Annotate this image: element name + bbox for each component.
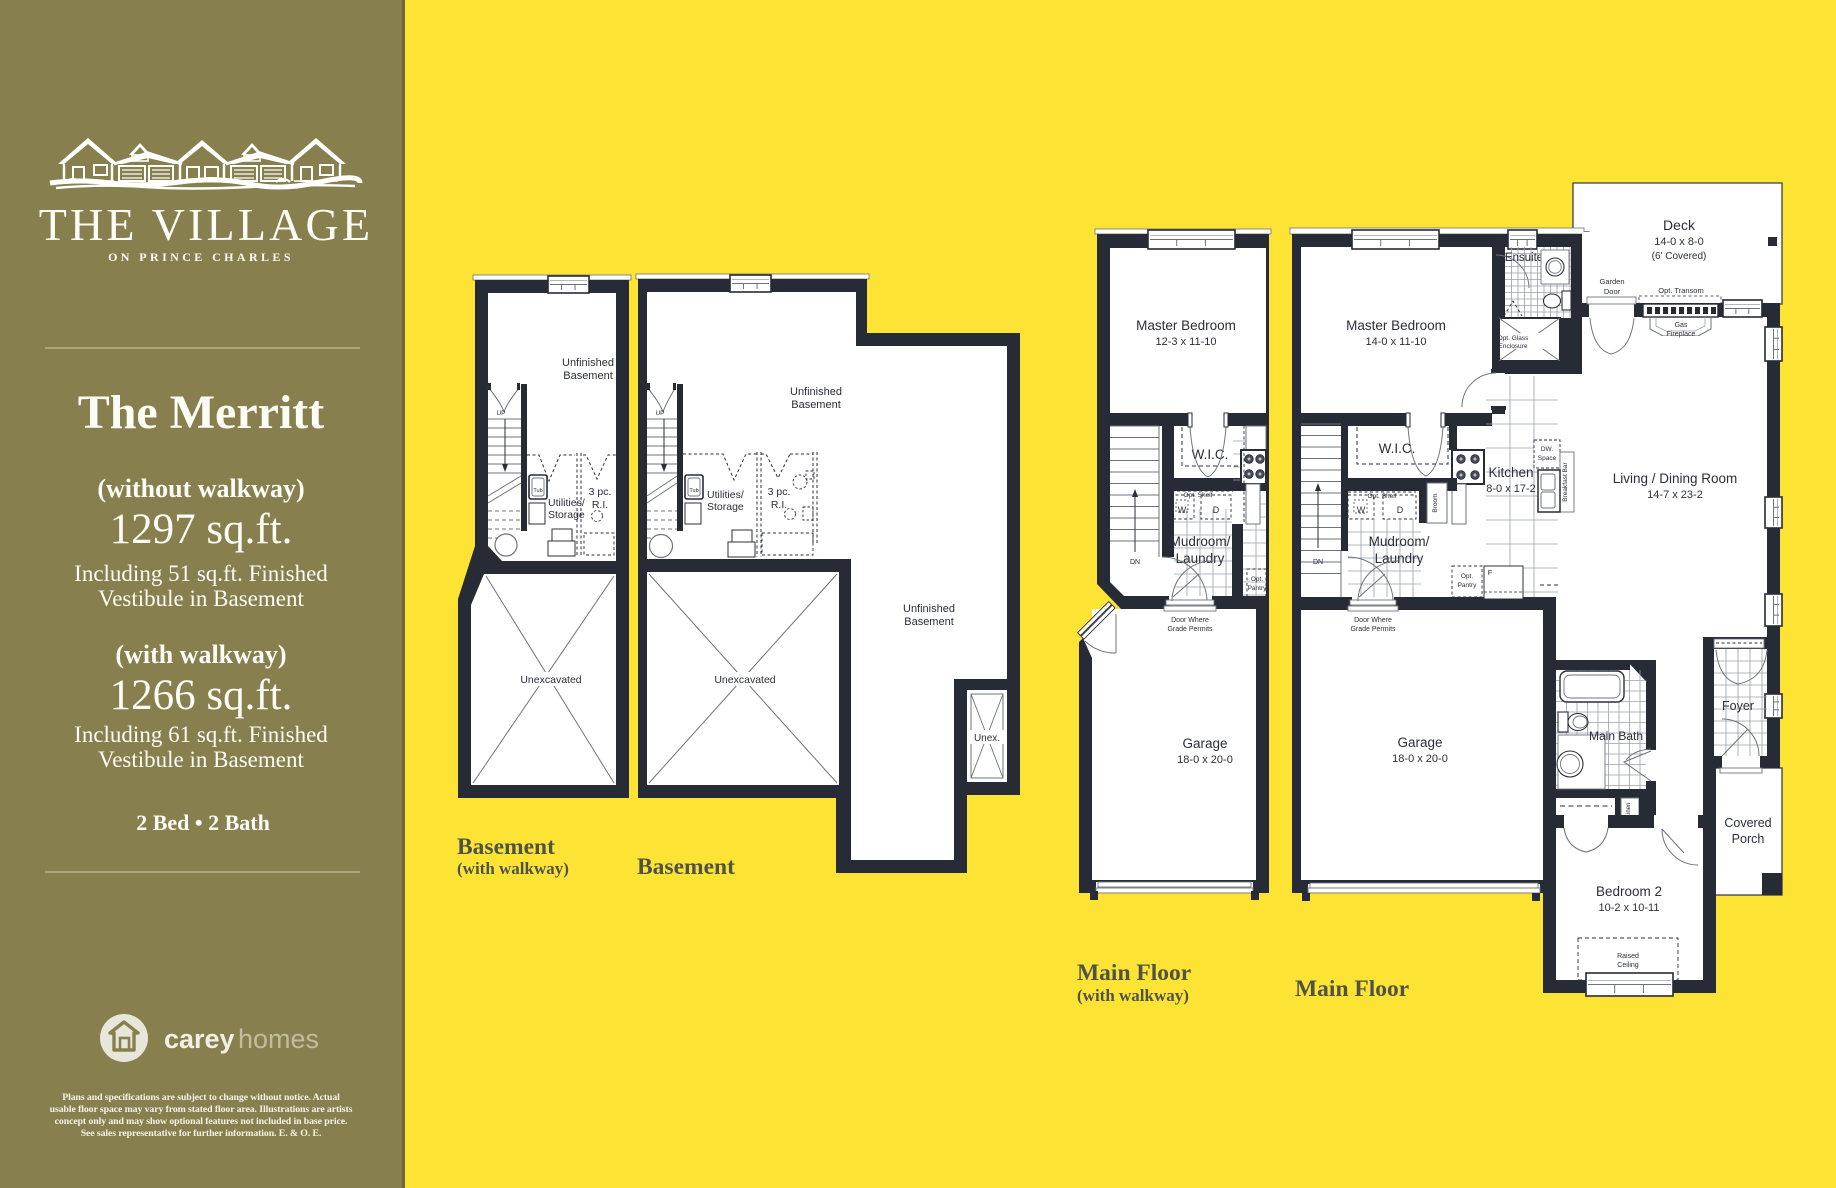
svg-text:Space: Space bbox=[1538, 455, 1557, 462]
svg-text:W: W bbox=[1178, 505, 1187, 515]
svg-text:10-2 x 10-11: 10-2 x 10-11 bbox=[1599, 902, 1660, 914]
svg-text:8-0 x 17-2: 8-0 x 17-2 bbox=[1486, 483, 1536, 495]
svg-text:DW.: DW. bbox=[1541, 446, 1553, 453]
svg-text:Master Bedroom: Master Bedroom bbox=[1346, 318, 1446, 333]
svg-text:Breakfast Bar: Breakfast Bar bbox=[1562, 461, 1569, 501]
svg-text:Unfinished: Unfinished bbox=[562, 357, 614, 369]
svg-text:The Merritt: The Merritt bbox=[78, 386, 325, 439]
svg-text:Grade Permits: Grade Permits bbox=[1350, 626, 1396, 633]
svg-text:Basement: Basement bbox=[563, 370, 613, 382]
svg-text:Garage: Garage bbox=[1397, 735, 1442, 750]
svg-text:(without walkway): (without walkway) bbox=[97, 474, 304, 503]
svg-text:Broom: Broom bbox=[1432, 493, 1439, 512]
svg-text:Master Bedroom: Master Bedroom bbox=[1136, 318, 1236, 333]
svg-text:UP: UP bbox=[655, 410, 664, 417]
svg-text:Basement: Basement bbox=[904, 616, 954, 628]
svg-text:14-7 x 23-2: 14-7 x 23-2 bbox=[1647, 489, 1703, 501]
svg-text:(with walkway): (with walkway) bbox=[115, 640, 286, 669]
svg-text:Pantry: Pantry bbox=[1248, 585, 1268, 592]
svg-text:Gas: Gas bbox=[1675, 322, 1688, 329]
svg-text:Utilities/: Utilities/ bbox=[548, 497, 585, 509]
svg-text:Pantry: Pantry bbox=[1458, 582, 1478, 589]
svg-text:DN: DN bbox=[1313, 559, 1323, 566]
svg-text:F: F bbox=[1488, 568, 1493, 577]
svg-text:Tub: Tub bbox=[533, 488, 542, 494]
svg-text:Fireplace: Fireplace bbox=[1667, 331, 1696, 338]
svg-text:UP: UP bbox=[496, 410, 505, 417]
svg-text:carey: carey bbox=[164, 1024, 235, 1054]
svg-text:homes: homes bbox=[238, 1024, 319, 1054]
svg-text:Opt.: Opt. bbox=[1251, 576, 1263, 583]
svg-text:(with walkway): (with walkway) bbox=[457, 859, 569, 878]
svg-text:Unfinished: Unfinished bbox=[790, 386, 842, 398]
svg-text:D: D bbox=[1397, 505, 1404, 515]
svg-text:Laundry: Laundry bbox=[1176, 551, 1225, 566]
svg-text:Tub: Tub bbox=[689, 488, 698, 494]
svg-text:Vestibule in Basement: Vestibule in Basement bbox=[98, 747, 304, 772]
svg-text:Door: Door bbox=[1604, 287, 1621, 296]
svg-text:18-0 x 20-0: 18-0 x 20-0 bbox=[1392, 753, 1448, 765]
svg-text:R.I.: R.I. bbox=[771, 499, 787, 511]
svg-text:Unex.: Unex. bbox=[974, 733, 1000, 744]
svg-text:Main Floor: Main Floor bbox=[1295, 976, 1409, 1002]
svg-text:ON PRINCE CHARLES: ON PRINCE CHARLES bbox=[108, 250, 294, 264]
svg-text:Covered: Covered bbox=[1724, 816, 1771, 830]
svg-text:Garage: Garage bbox=[1182, 736, 1227, 751]
svg-text:18-0 x 20-0: 18-0 x 20-0 bbox=[1177, 754, 1233, 766]
svg-text:Storage: Storage bbox=[707, 501, 744, 513]
svg-text:D: D bbox=[1213, 505, 1220, 515]
svg-text:Main Bath: Main Bath bbox=[1589, 729, 1643, 743]
svg-text:Unexcavated: Unexcavated bbox=[714, 674, 775, 686]
svg-text:Opt.: Opt. bbox=[1461, 573, 1473, 580]
svg-text:Main Floor: Main Floor bbox=[1077, 960, 1191, 986]
svg-text:Deck: Deck bbox=[1663, 217, 1696, 233]
svg-text:Vestibule in Basement: Vestibule in Basement bbox=[98, 586, 304, 611]
svg-text:Door Where: Door Where bbox=[1171, 617, 1209, 624]
svg-text:Unfinished: Unfinished bbox=[903, 603, 955, 615]
svg-text:1266 sq.ft.: 1266 sq.ft. bbox=[110, 672, 293, 719]
svg-text:Bedroom 2: Bedroom 2 bbox=[1596, 884, 1662, 899]
svg-text:Opt. Shelf: Opt. Shelf bbox=[1368, 493, 1397, 500]
svg-text:Including 61 sq.ft. Finished: Including 61 sq.ft. Finished bbox=[74, 722, 328, 747]
svg-text:THE VILLAGE: THE VILLAGE bbox=[39, 199, 374, 250]
svg-text:Enclosure: Enclosure bbox=[1499, 343, 1528, 350]
svg-text:Opt. Transom: Opt. Transom bbox=[1658, 286, 1703, 295]
svg-text:Unexcavated: Unexcavated bbox=[520, 674, 581, 686]
svg-text:usable floor space may vary fr: usable floor space may vary from stated … bbox=[50, 1104, 353, 1115]
svg-text:Including 51 sq.ft. Finished: Including 51 sq.ft. Finished bbox=[74, 561, 328, 586]
svg-text:Living / Dining Room: Living / Dining Room bbox=[1613, 471, 1738, 486]
svg-text:(with walkway): (with walkway) bbox=[1077, 986, 1189, 1005]
svg-text:1297 sq.ft.: 1297 sq.ft. bbox=[110, 506, 293, 553]
svg-text:Grade Permits: Grade Permits bbox=[1167, 626, 1213, 633]
svg-text:Basement: Basement bbox=[791, 399, 841, 411]
svg-text:Kitchen: Kitchen bbox=[1488, 465, 1533, 480]
svg-text:2 Bed • 2 Bath: 2 Bed • 2 Bath bbox=[136, 810, 270, 835]
svg-text:Door Where: Door Where bbox=[1354, 617, 1392, 624]
svg-text:(6' Covered): (6' Covered) bbox=[1652, 251, 1707, 262]
svg-text:Ceiling: Ceiling bbox=[1617, 962, 1639, 969]
svg-text:concept only and may show opti: concept only and may show optional featu… bbox=[55, 1116, 348, 1127]
svg-text:Opt. Glass: Opt. Glass bbox=[1498, 335, 1529, 342]
svg-text:3 pc.: 3 pc. bbox=[768, 486, 791, 498]
svg-text:12-3 x 11-10: 12-3 x 11-10 bbox=[1156, 336, 1217, 348]
svg-text:R.I.: R.I. bbox=[592, 499, 608, 511]
svg-text:Plans and specifications are s: Plans and specifications are subject to … bbox=[62, 1092, 340, 1103]
svg-text:Porch: Porch bbox=[1732, 832, 1765, 846]
svg-text:Basement: Basement bbox=[637, 854, 735, 880]
svg-text:Mudroom/: Mudroom/ bbox=[1170, 534, 1231, 549]
svg-text:3 pc.: 3 pc. bbox=[589, 486, 612, 498]
svg-text:See sales representative for f: See sales representative for further inf… bbox=[81, 1128, 322, 1139]
svg-text:Basement: Basement bbox=[457, 834, 555, 860]
svg-text:Raised: Raised bbox=[1617, 953, 1639, 960]
svg-text:Opt. Shelf: Opt. Shelf bbox=[1184, 492, 1213, 499]
svg-text:Garden: Garden bbox=[1599, 277, 1624, 286]
svg-text:Foyer: Foyer bbox=[1722, 699, 1754, 713]
svg-text:Storage: Storage bbox=[548, 509, 585, 521]
svg-text:Ensuite: Ensuite bbox=[1505, 252, 1543, 264]
svg-text:14-0 x 8-0: 14-0 x 8-0 bbox=[1654, 236, 1704, 248]
svg-text:Mudroom/: Mudroom/ bbox=[1369, 534, 1430, 549]
svg-text:W: W bbox=[1357, 505, 1366, 515]
svg-text:14-0 x 11-10: 14-0 x 11-10 bbox=[1366, 336, 1427, 348]
svg-text:DN: DN bbox=[1130, 559, 1140, 566]
svg-text:Utilities/: Utilities/ bbox=[707, 489, 744, 501]
svg-text:W.I.C.: W.I.C. bbox=[1379, 441, 1416, 456]
